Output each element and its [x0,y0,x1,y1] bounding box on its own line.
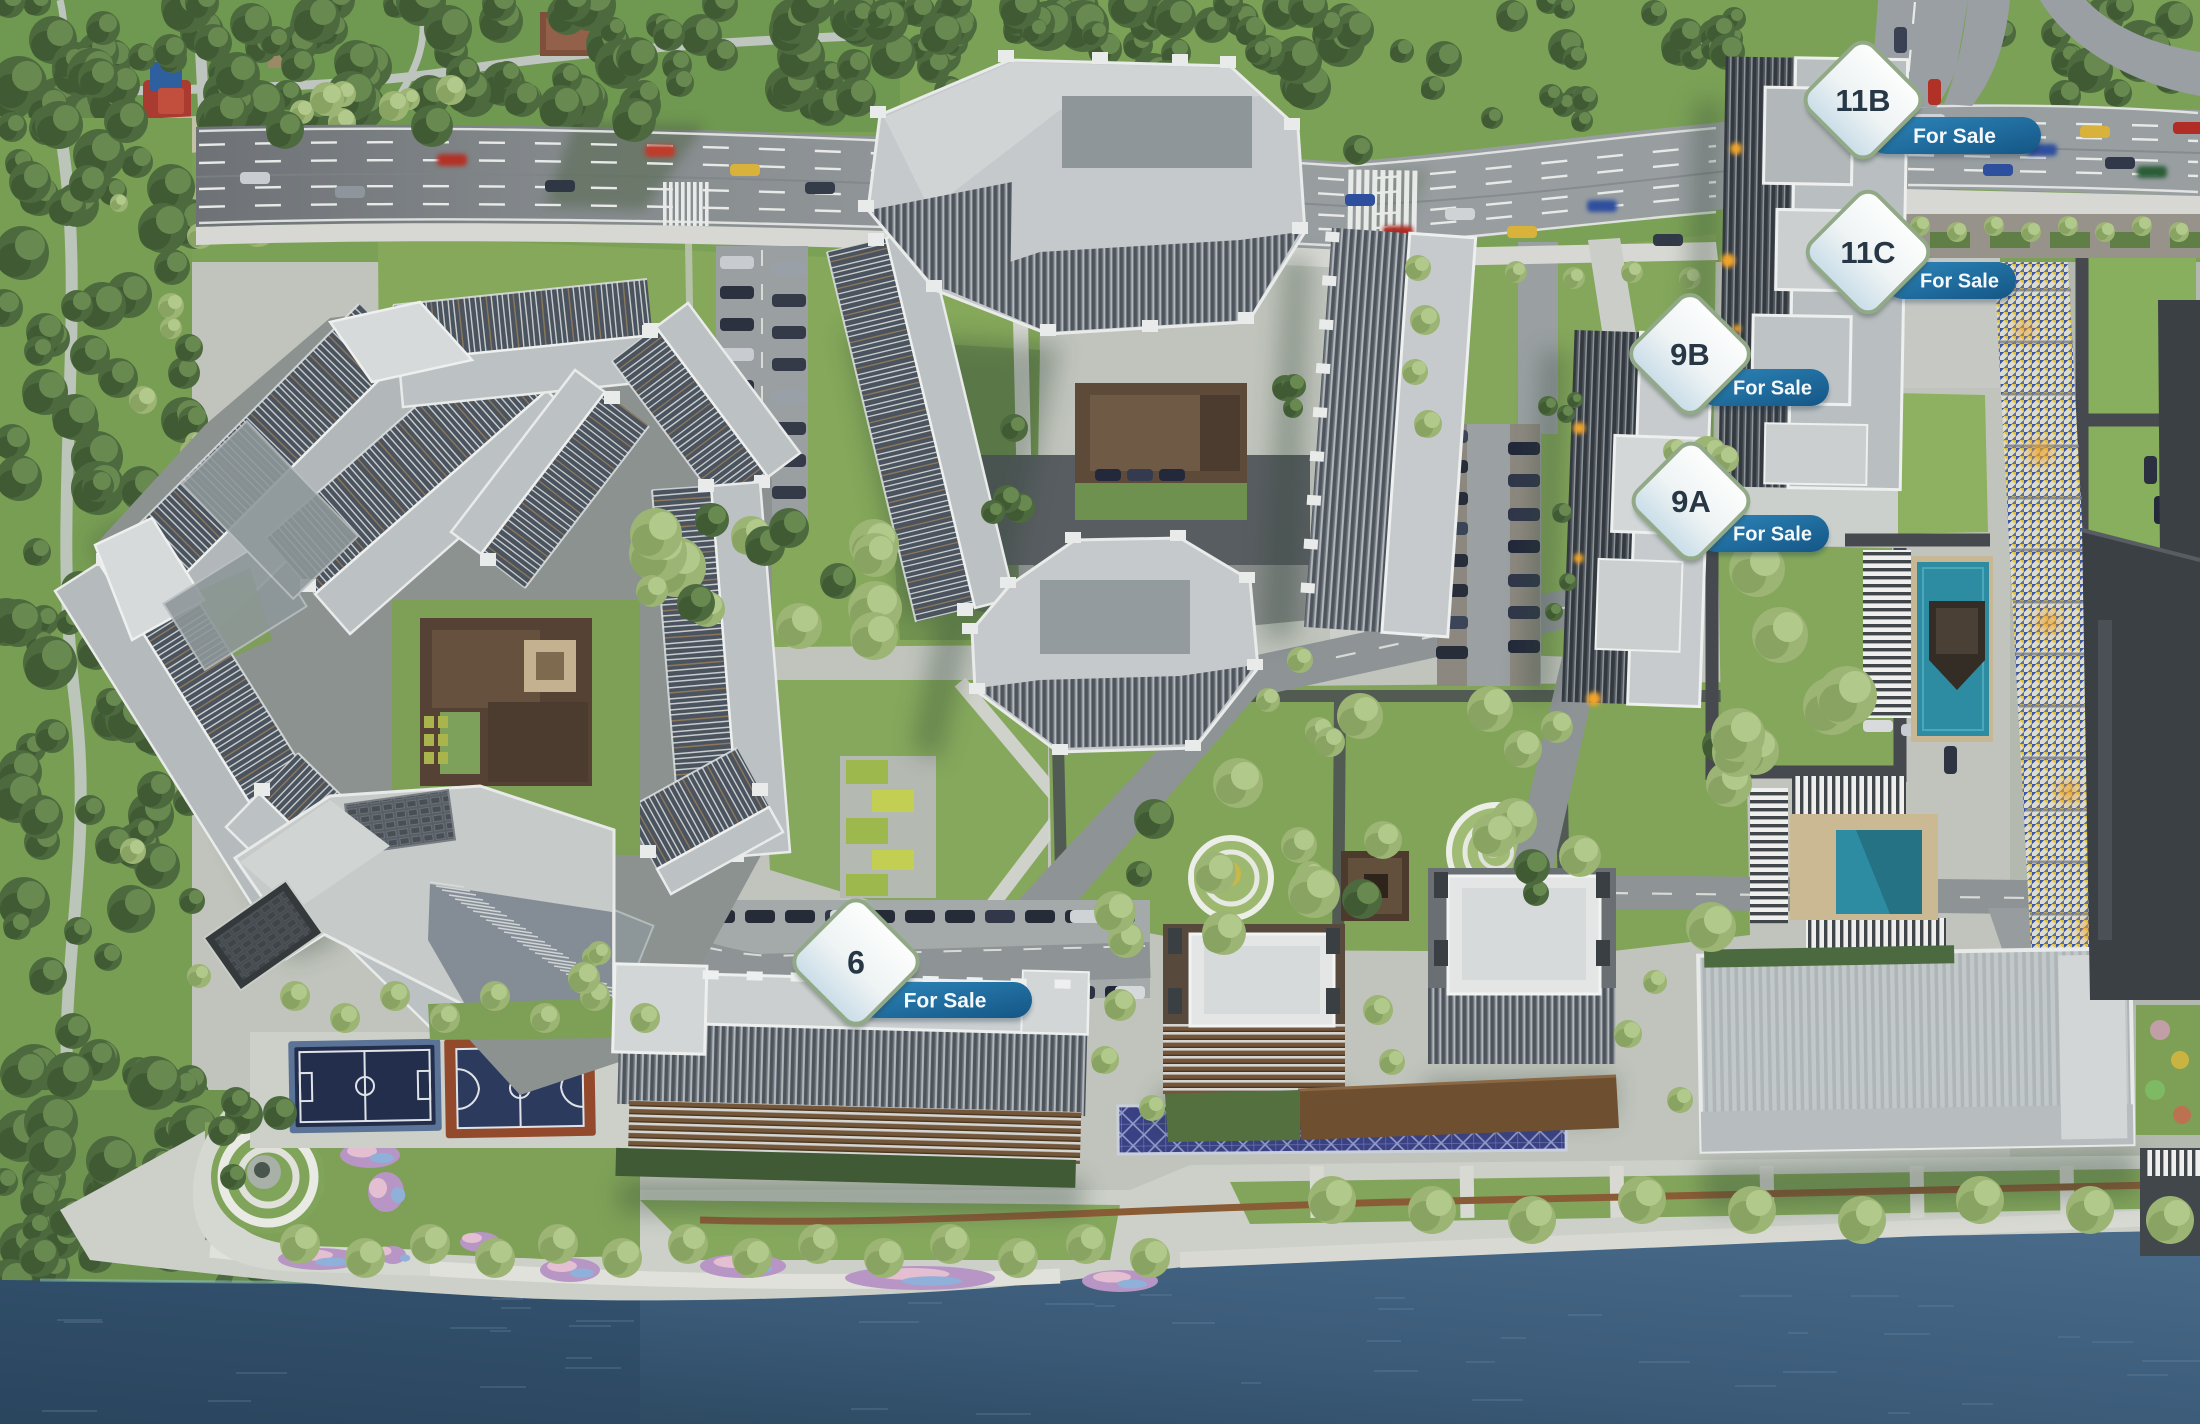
svg-text:For Sale: For Sale [1920,271,1999,293]
svg-text:11C: 11C [1840,235,1895,270]
svg-text:For Sale: For Sale [1913,125,1996,148]
svg-text:9B: 9B [1670,337,1710,372]
svg-text:For Sale: For Sale [1733,524,1812,546]
svg-text:For Sale: For Sale [904,990,987,1013]
svg-text:11B: 11B [1835,83,1890,118]
svg-text:6: 6 [847,945,865,981]
svg-text:9A: 9A [1671,484,1711,519]
svg-text:For Sale: For Sale [1733,378,1812,400]
